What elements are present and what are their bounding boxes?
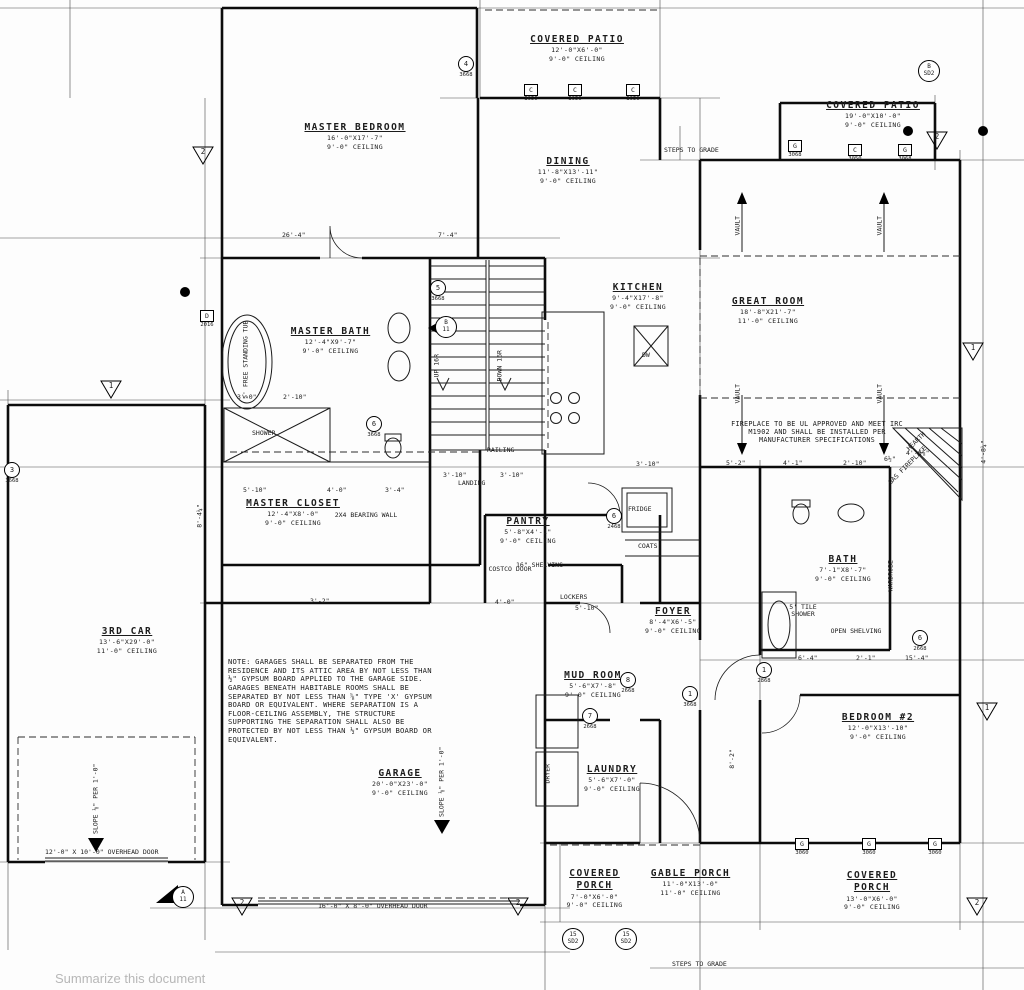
marker-sheet: SD2 bbox=[568, 939, 579, 946]
fireplace-note: FIREPLACE TO BE UL APPROVED AND MEET IRC… bbox=[722, 420, 912, 444]
door-size: 3668 bbox=[367, 432, 380, 438]
window-tag: C 3050 bbox=[524, 84, 538, 102]
marker-number: 2 bbox=[231, 898, 253, 907]
room-label-garage: GARAGE 20'-0"X23'-0" 9'-0" CEILING bbox=[355, 768, 445, 797]
room-name: COVERED PATIO bbox=[813, 100, 933, 112]
room-size: 11'-8"X13'-11" bbox=[513, 168, 623, 176]
window-size: 3050 bbox=[626, 96, 639, 102]
room-size: 12'-0"X6'-0" bbox=[517, 46, 637, 54]
open-shelving-note: OPEN SHELVING bbox=[830, 628, 882, 635]
window-tag: C 3050 bbox=[848, 144, 862, 162]
room-ceiling: 11'-0" CEILING bbox=[703, 317, 833, 325]
summarize-document-hint[interactable]: Summarize this document bbox=[55, 971, 205, 986]
room-ceiling: 9'-0" CEILING bbox=[818, 733, 938, 741]
bath-sink bbox=[838, 504, 864, 522]
dim: 2'-10" bbox=[283, 393, 306, 401]
marker-sheet: SD2 bbox=[924, 71, 935, 78]
room-name: BEDROOM #2 bbox=[818, 712, 938, 724]
door-number: 1 bbox=[682, 686, 698, 702]
room-size: 8'-4"X6'-5" bbox=[628, 618, 718, 626]
room-size: 7'-1"X8'-7" bbox=[803, 566, 883, 574]
room-name: LAUNDRY bbox=[567, 764, 657, 776]
room-name: COVERED PORCH bbox=[827, 870, 917, 895]
door-number: 6 bbox=[912, 630, 928, 646]
bath-tub bbox=[762, 592, 796, 658]
room-ceiling: 9'-0" CEILING bbox=[567, 785, 657, 793]
dim: 5'-2" bbox=[726, 459, 746, 467]
master-shower bbox=[224, 408, 330, 462]
room-size: 7'-0"X6'-0" bbox=[552, 893, 637, 901]
dim: 26'-4" bbox=[282, 231, 305, 239]
dim: 4'-6⅞" bbox=[906, 449, 929, 457]
door-number: 1 bbox=[756, 662, 772, 678]
room-name: GREAT ROOM bbox=[703, 296, 833, 308]
door-size: 3668 bbox=[431, 296, 444, 302]
door-tag: 6 2468 bbox=[606, 508, 622, 530]
room-ceiling: 9'-0" CEILING bbox=[355, 789, 445, 797]
door-size: 2668 bbox=[583, 724, 596, 730]
section-marker: 1 bbox=[976, 702, 998, 721]
window-letter: G bbox=[928, 838, 942, 850]
vanity-sink bbox=[388, 313, 410, 343]
room-name: PANTRY bbox=[483, 516, 573, 528]
window-tag: C 3050 bbox=[626, 84, 640, 102]
dim: 8'-4¼" bbox=[196, 504, 204, 527]
door-size: 2668 bbox=[621, 688, 634, 694]
dim: 3'-10" bbox=[500, 471, 523, 479]
room-name: MASTER BEDROOM bbox=[295, 122, 415, 134]
steps-to-grade-top: STEPS TO GRADE bbox=[664, 147, 719, 154]
dishwasher bbox=[634, 326, 668, 366]
room-label-covered-porch-right: COVERED PORCH 13'-0"X6'-0" 9'-0" CEILING bbox=[827, 870, 917, 912]
room-size: 12'-0"X13'-10" bbox=[818, 724, 938, 732]
window-letter: G bbox=[795, 838, 809, 850]
dim: 3'-2" bbox=[310, 597, 330, 605]
window-letter: C bbox=[568, 84, 582, 96]
room-name: MASTER BATH bbox=[283, 326, 378, 338]
dim: 5'-10" bbox=[243, 486, 266, 494]
coats-note: COATS bbox=[638, 543, 658, 550]
section-marker: 2 bbox=[966, 897, 988, 916]
stairs bbox=[430, 260, 545, 450]
window-size: 3050 bbox=[524, 96, 537, 102]
section-marker: 1 bbox=[962, 342, 984, 361]
room-label-great-room: GREAT ROOM 18'-8"X21'-7" 11'-0" CEILING bbox=[703, 296, 833, 325]
door-tag: 8 2668 bbox=[620, 672, 636, 694]
stairs-up-note: UP 16R bbox=[433, 341, 440, 391]
door-size: 2468 bbox=[607, 524, 620, 530]
dishwasher-label: DW bbox=[642, 352, 650, 359]
room-ceiling: 11'-0" CEILING bbox=[72, 647, 182, 655]
room-size: 9'-4"X17'-8" bbox=[593, 294, 683, 302]
door-number: 3 bbox=[4, 462, 20, 478]
dim: 2'-10" bbox=[843, 459, 866, 467]
door-tag: 1 2868 bbox=[756, 662, 772, 684]
door-tag: 1 3668 bbox=[682, 686, 698, 708]
marker-sheet: 11 bbox=[442, 327, 449, 334]
window-tag: G 3068 bbox=[788, 140, 802, 158]
window-letter: C bbox=[524, 84, 538, 96]
room-name: FOYER bbox=[628, 606, 718, 618]
window-letter: G bbox=[788, 140, 802, 152]
room-label-master-closet: MASTER CLOSET 12'-4"X8'-0" 9'-0" CEILING bbox=[243, 498, 343, 527]
room-ceiling: 9'-0" CEILING bbox=[243, 519, 343, 527]
room-name: DINING bbox=[513, 156, 623, 168]
room-size: 5'-6"X7'-0" bbox=[567, 776, 657, 784]
window-tag: G 3068 bbox=[898, 144, 912, 162]
room-name: MASTER CLOSET bbox=[243, 498, 343, 510]
wardrobe-note: WARDROBE bbox=[887, 545, 894, 607]
dim: 4'-0" bbox=[495, 598, 515, 606]
section-marker: 2 bbox=[231, 897, 253, 916]
slope-note-garage: SLOPE ⅛" PER 1'-0" bbox=[438, 734, 445, 830]
window-size: 3068 bbox=[898, 156, 911, 162]
fridge-note: FRIDGE bbox=[628, 506, 651, 513]
landing-note: LANDING bbox=[458, 480, 485, 487]
room-label-bath: BATH 7'-1"X8'-7" 9'-0" CEILING bbox=[803, 554, 883, 583]
window-tag: C 3050 bbox=[568, 84, 582, 102]
room-label-laundry: LAUNDRY 5'-6"X7'-0" 9'-0" CEILING bbox=[567, 764, 657, 793]
room-ceiling: 9'-0" CEILING bbox=[803, 575, 883, 583]
smoke-detector-marker: B SD2 bbox=[918, 60, 940, 82]
section-marker: 2 bbox=[507, 897, 529, 916]
room-label-pantry: PANTRY 5'-8"X4'-1" 9'-0" CEILING bbox=[483, 516, 573, 545]
window-size: 3060 bbox=[928, 850, 941, 856]
marker-number: 1 bbox=[100, 381, 122, 390]
shower-note: SHOWER bbox=[252, 430, 275, 437]
door-tag: 7 2668 bbox=[582, 708, 598, 730]
dim: 6'-4" bbox=[798, 654, 818, 662]
window-size: 3050 bbox=[568, 96, 581, 102]
window-size: 3050 bbox=[848, 156, 861, 162]
elevation-marker-b11: B 11 bbox=[435, 316, 457, 338]
room-name: GABLE PORCH bbox=[648, 868, 733, 880]
overhead-door-16-label: 16'-0" X 8'-0" OVERHEAD DOOR bbox=[318, 903, 428, 910]
window-tag: G 3060 bbox=[862, 838, 876, 856]
vault-note-3: VAULT bbox=[734, 374, 741, 414]
marker-number: 1 bbox=[962, 343, 984, 352]
door-number: 6 bbox=[606, 508, 622, 524]
tile-shower-note: 5' TILE SHOWER bbox=[778, 604, 828, 619]
room-size: 19'-0"X10'-0" bbox=[813, 112, 933, 120]
vault-note-1: VAULT bbox=[734, 206, 741, 246]
dim: 3'-0" bbox=[237, 393, 257, 401]
window-tag: G 3060 bbox=[795, 838, 809, 856]
room-ceiling: 9'-0" CEILING bbox=[283, 347, 378, 355]
room-ceiling: 9'-0" CEILING bbox=[517, 55, 637, 63]
smoke-detector-marker: 15 SD2 bbox=[562, 928, 584, 950]
door-number: 5 bbox=[430, 280, 446, 296]
room-label-covered-porch-bottom: COVERED PORCH 7'-0"X6'-0" 9'-0" CEILING bbox=[552, 868, 637, 910]
door-size: 3668 bbox=[683, 702, 696, 708]
room-size: 18'-8"X21'-7" bbox=[703, 308, 833, 316]
overhead-door-12-label: 12'-0" X 10'-0" OVERHEAD DOOR bbox=[45, 849, 159, 856]
room-name: COVERED PATIO bbox=[517, 34, 637, 46]
dim: 4'-0" bbox=[327, 486, 347, 494]
door-number: 6 bbox=[366, 416, 382, 432]
steps-to-grade-bottom: STEPS TO GRADE bbox=[672, 961, 727, 968]
room-name: 3RD CAR bbox=[72, 626, 182, 638]
window-size: 2016 bbox=[200, 322, 213, 328]
room-size: 16'-0"X17'-7" bbox=[295, 134, 415, 142]
marker-sheet: SD2 bbox=[621, 939, 632, 946]
door-size: 3668 bbox=[5, 478, 18, 484]
room-ceiling: 9'-0" CEILING bbox=[827, 903, 917, 911]
window-letter: G bbox=[862, 838, 876, 850]
room-label-gable-porch: GABLE PORCH 11'-0"X13'-0" 11'-0" CEILING bbox=[648, 868, 733, 897]
window-size: 3060 bbox=[862, 850, 875, 856]
room-size: 12'-4"X9'-7" bbox=[283, 338, 378, 346]
room-ceiling: 9'-0" CEILING bbox=[295, 143, 415, 151]
door-tag: 6 2668 bbox=[912, 630, 928, 652]
dim: 7'-4" bbox=[438, 231, 458, 239]
door-tag: 4 3668 bbox=[458, 56, 474, 78]
room-label-kitchen: KITCHEN 9'-4"X17'-8" 9'-0" CEILING bbox=[593, 282, 683, 311]
door-number: 4 bbox=[458, 56, 474, 72]
railing-note: RAILING bbox=[487, 447, 514, 454]
dryer-note: DRYER bbox=[544, 754, 551, 794]
dim: 3'-10" bbox=[443, 471, 466, 479]
door-size: 2668 bbox=[913, 646, 926, 652]
room-ceiling: 9'-0" CEILING bbox=[628, 627, 718, 635]
room-name: BATH bbox=[803, 554, 883, 566]
dim: 4'-8¼" bbox=[980, 440, 988, 463]
room-name: COVERED PORCH bbox=[552, 868, 637, 893]
section-marker: 1 bbox=[100, 380, 122, 399]
window-letter: G bbox=[898, 144, 912, 156]
door-size: 3668 bbox=[459, 72, 472, 78]
window-size: 3060 bbox=[795, 850, 808, 856]
dim: 15'-4" bbox=[905, 654, 928, 662]
room-ceiling: 9'-0" CEILING bbox=[483, 537, 573, 545]
window-letter: C bbox=[626, 84, 640, 96]
dim: 2'-1" bbox=[856, 654, 876, 662]
window-tag: G 3060 bbox=[928, 838, 942, 856]
marker-number: 1 bbox=[976, 703, 998, 712]
smoke-detector-marker: 15 SD2 bbox=[615, 928, 637, 950]
dim: 3'-4" bbox=[385, 486, 405, 494]
window-tag: D 2016 bbox=[200, 310, 214, 328]
slope-note-3rd-car: SLOPE ⅛" PER 1'-0" bbox=[92, 751, 99, 847]
room-size: 5'-8"X4'-1" bbox=[483, 528, 573, 536]
window-letter: C bbox=[848, 144, 862, 156]
elevation-marker-a11: A 11 bbox=[172, 886, 194, 908]
section-marker: 2 bbox=[192, 146, 214, 165]
kitchen-island bbox=[542, 312, 604, 454]
door-tag: 5 3668 bbox=[430, 280, 446, 302]
costco-door-note: COSTCO DOOR bbox=[486, 566, 534, 573]
vault-note-4: VAULT bbox=[876, 374, 883, 414]
room-size: 13'-0"X6'-0" bbox=[827, 895, 917, 903]
room-name: GARAGE bbox=[355, 768, 445, 780]
room-ceiling: 9'-0" CEILING bbox=[593, 303, 683, 311]
floor-plan-page: MASTER BEDROOM 16'-0"X17'-7" 9'-0" CEILI… bbox=[0, 0, 1024, 990]
marker-number: 2 bbox=[507, 898, 529, 907]
room-size: 11'-0"X13'-0" bbox=[648, 880, 733, 888]
room-label-master-bedroom: MASTER BEDROOM 16'-0"X17'-7" 9'-0" CEILI… bbox=[295, 122, 415, 151]
window-size: 3068 bbox=[788, 152, 801, 158]
vanity-sink2 bbox=[388, 351, 410, 381]
door-number: 8 bbox=[620, 672, 636, 688]
door-number: 7 bbox=[582, 708, 598, 724]
marker-sheet: 11 bbox=[179, 897, 186, 904]
room-label-master-bath: MASTER BATH 12'-4"X9'-7" 9'-0" CEILING bbox=[283, 326, 378, 355]
marker-number: 2 bbox=[192, 147, 214, 156]
door-tag: 3 3668 bbox=[4, 462, 20, 484]
door-tag: 6 3668 bbox=[366, 416, 382, 438]
marker-number: 2 bbox=[966, 898, 988, 907]
room-label-covered-patio-top: COVERED PATIO 12'-0"X6'-0" 9'-0" CEILING bbox=[517, 34, 637, 63]
room-ceiling: 9'-0" CEILING bbox=[813, 121, 933, 129]
room-ceiling: 11'-0" CEILING bbox=[648, 889, 733, 897]
stairs-down-note: DOWN 16R bbox=[496, 341, 503, 391]
room-label-foyer: FOYER 8'-4"X6'-5" 9'-0" CEILING bbox=[628, 606, 718, 635]
lockers-note: LOCKERS bbox=[560, 594, 587, 601]
room-name: KITCHEN bbox=[593, 282, 683, 294]
vault-note-2: VAULT bbox=[876, 206, 883, 246]
room-label-covered-patio-right: COVERED PATIO 19'-0"X10'-0" 9'-0" CEILIN… bbox=[813, 100, 933, 129]
garage-separation-note: NOTE: GARAGES SHALL BE SEPARATED FROM TH… bbox=[228, 658, 436, 744]
room-ceiling: 9'-0" CEILING bbox=[552, 901, 637, 909]
dim: 6½" bbox=[884, 455, 896, 463]
room-size: 13'-6"X29'-0" bbox=[72, 638, 182, 646]
room-size: 20'-0"X23'-0" bbox=[355, 780, 445, 788]
marker-number: 2 bbox=[926, 132, 948, 141]
section-marker: 2 bbox=[926, 131, 948, 150]
dim: 3'-10" bbox=[636, 460, 659, 468]
dim: 8'-2" bbox=[728, 749, 736, 769]
room-label-bedroom-2: BEDROOM #2 12'-0"X13'-10" 9'-0" CEILING bbox=[818, 712, 938, 741]
window-letter: D bbox=[200, 310, 214, 322]
bearing-wall-note: 2X4 BEARING WALL bbox=[330, 512, 402, 519]
room-label-dining: DINING 11'-8"X13'-11" 9'-0" CEILING bbox=[513, 156, 623, 185]
dim: 5'-10" bbox=[575, 604, 598, 612]
door-size: 2868 bbox=[757, 678, 770, 684]
room-ceiling: 9'-0" CEILING bbox=[513, 177, 623, 185]
dim: 4'-1" bbox=[783, 459, 803, 467]
room-size: 12'-4"X8'-0" bbox=[243, 510, 343, 518]
room-label-third-car: 3RD CAR 13'-6"X29'-0" 11'-0" CEILING bbox=[72, 626, 182, 655]
